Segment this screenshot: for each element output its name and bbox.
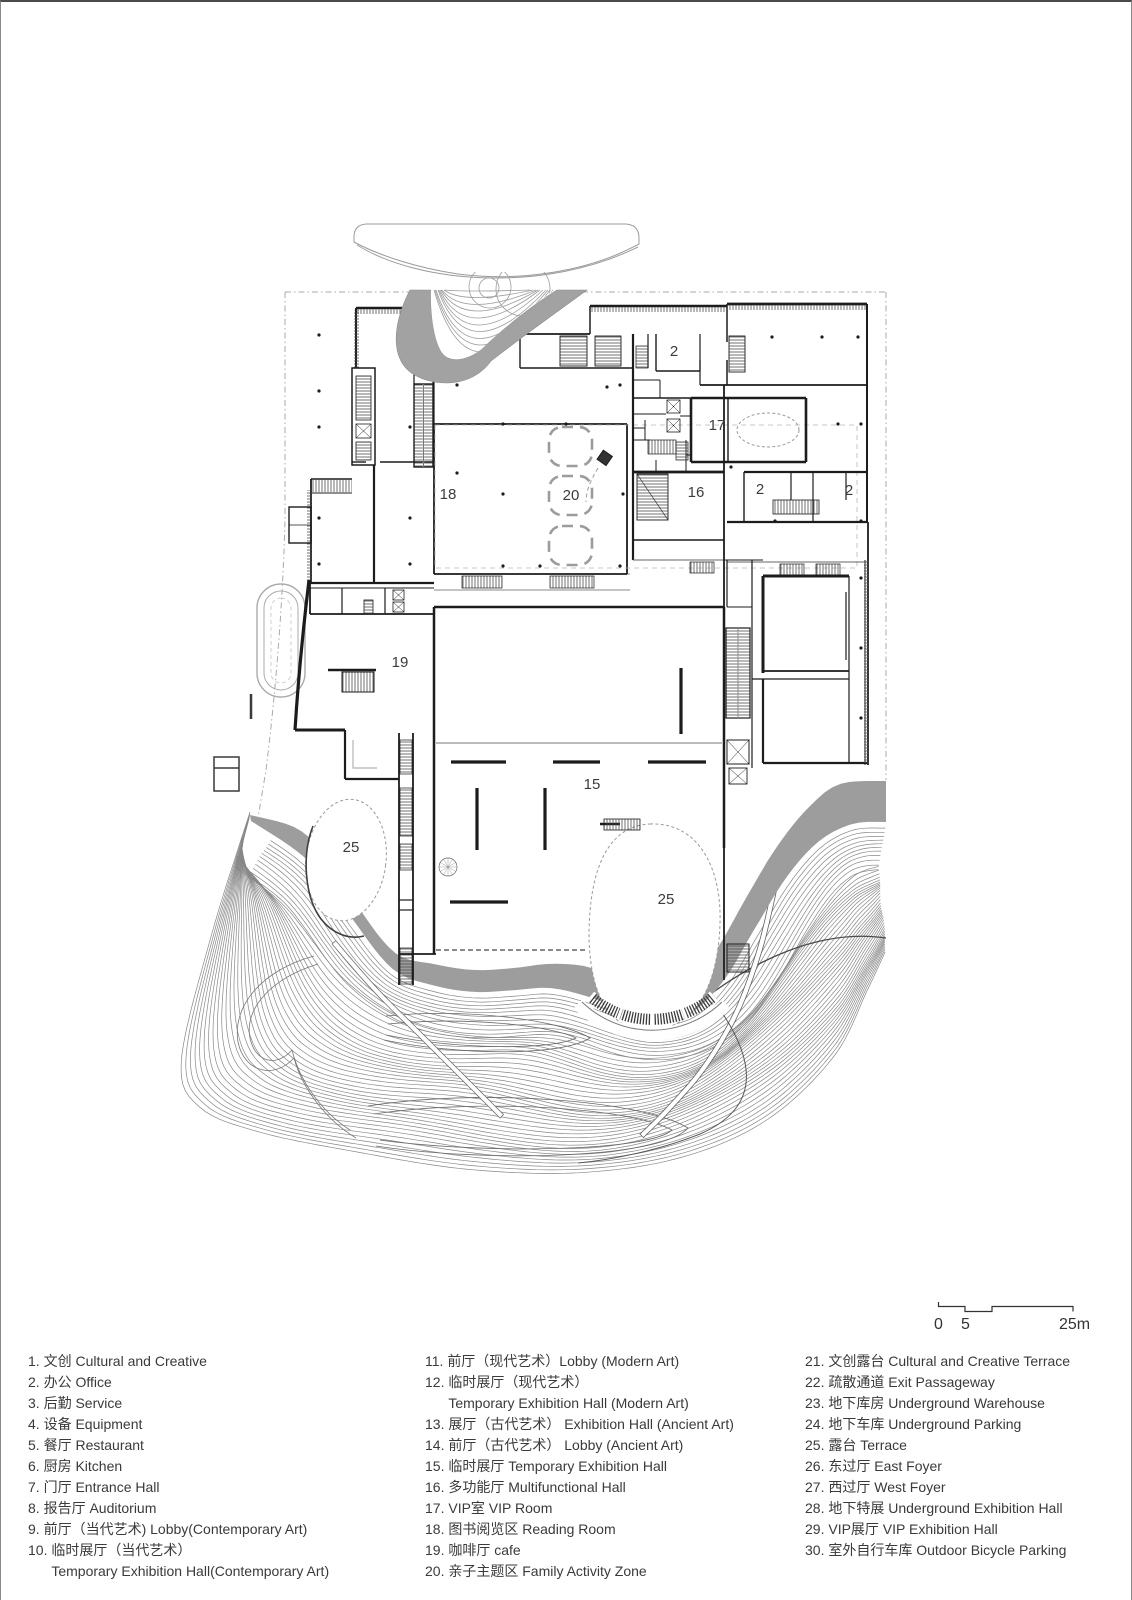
svg-text:17: 17	[709, 417, 726, 434]
svg-text:15: 15	[584, 776, 601, 793]
svg-text:25m: 25m	[1059, 1316, 1090, 1333]
svg-text:18: 18	[440, 486, 457, 503]
svg-text:2: 2	[845, 482, 853, 499]
svg-text:25: 25	[658, 891, 675, 908]
svg-text:2: 2	[670, 343, 678, 360]
svg-text:5: 5	[961, 1316, 970, 1333]
svg-text:25: 25	[343, 839, 360, 856]
svg-text:16: 16	[688, 484, 705, 501]
svg-text:20: 20	[563, 487, 580, 504]
svg-text:0: 0	[934, 1316, 943, 1333]
svg-text:2: 2	[756, 481, 764, 498]
svg-text:19: 19	[392, 654, 409, 671]
